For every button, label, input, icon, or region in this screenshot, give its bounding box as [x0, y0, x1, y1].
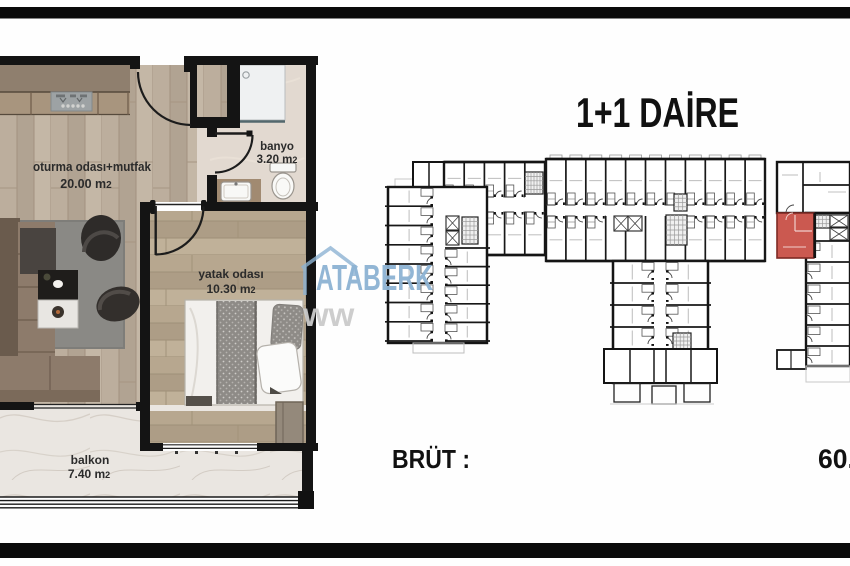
svg-text:20.00 m2: 20.00 m2	[60, 177, 112, 191]
svg-text:yatak odası: yatak odası	[198, 267, 263, 281]
svg-text:60.5: 60.5	[818, 444, 850, 474]
svg-text:7.40 m2: 7.40 m2	[68, 467, 110, 481]
svg-text:3.20 m2: 3.20 m2	[257, 154, 298, 166]
svg-text:ATABERK: ATABERK	[316, 257, 433, 298]
svg-text:BRÜT :: BRÜT :	[392, 444, 470, 474]
svg-text:banyo: banyo	[260, 141, 294, 153]
svg-text:1+1 DAİRE: 1+1 DAİRE	[576, 89, 739, 136]
svg-text:balkon: balkon	[71, 453, 110, 467]
svg-text:ww: ww	[302, 296, 355, 333]
svg-text:oturma odası+mutfak: oturma odası+mutfak	[33, 160, 151, 174]
svg-text:10.30 m2: 10.30 m2	[206, 282, 255, 296]
